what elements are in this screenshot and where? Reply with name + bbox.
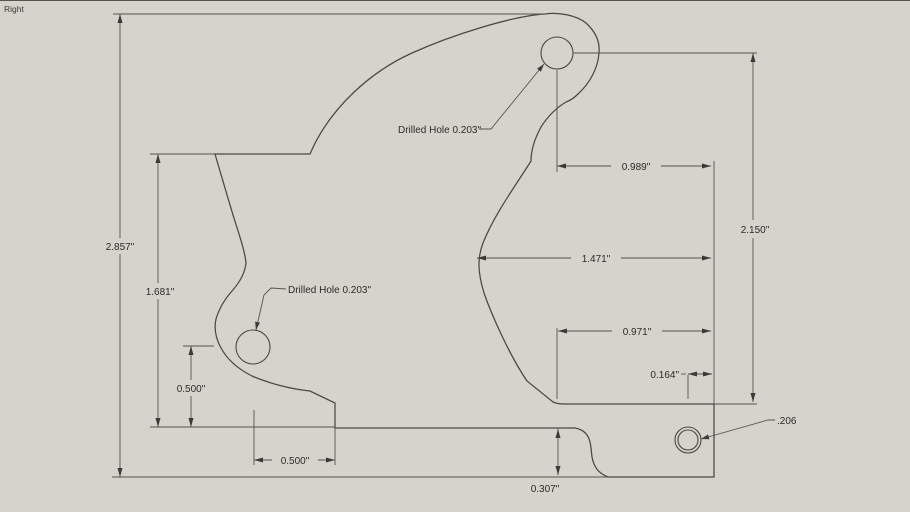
dim-hole-to-right-edge-label[interactable]: 0.989" (622, 162, 651, 173)
dimension-right-side-height[interactable]: 2.150" (573, 53, 770, 404)
dim-hole-center-offset-label[interactable]: 0.500" (281, 456, 310, 467)
dim-left-profile-height-label[interactable]: 1.681" (146, 287, 175, 298)
dimension-hole-center-offset[interactable]: 0.500" (254, 410, 335, 467)
leader-small-hole[interactable]: .206 (700, 416, 797, 441)
dimension-step-height[interactable]: 0.307" (531, 429, 561, 495)
leader-lower-drilled-hole-label[interactable]: Drilled Hole 0.203" (288, 285, 371, 296)
dim-hole-center-height-label[interactable]: 0.500" (177, 384, 206, 395)
leader-small-hole-label[interactable]: .206 (777, 416, 797, 427)
leader-lower-drilled-hole[interactable]: Drilled Hole 0.203" (254, 285, 372, 330)
dim-arc-to-right-edge-label[interactable]: 1.471" (582, 254, 611, 265)
dim-small-hole-to-edge-label[interactable]: 0.164" (650, 370, 679, 381)
dimension-overall-height[interactable]: 2.857" (106, 14, 608, 477)
part-outline[interactable] (215, 13, 714, 477)
leader-top-drilled-hole-label[interactable]: Drilled Hole 0.203" (398, 125, 481, 136)
dim-right-side-height-label[interactable]: 2.150" (741, 225, 770, 236)
dim-overall-height-label[interactable]: 2.857" (106, 242, 135, 253)
top-drilled-hole[interactable] (541, 37, 573, 69)
leader-top-drilled-hole[interactable]: Drilled Hole 0.203" (398, 62, 546, 136)
dim-step-height-label[interactable]: 0.307" (531, 484, 560, 495)
small-hole-inner[interactable] (678, 430, 698, 450)
small-hole-outer[interactable] (675, 427, 701, 453)
scene-label: Right (4, 4, 24, 14)
cad-viewport[interactable]: Right 2.857" 1.681" 0.500" (0, 0, 910, 512)
dimension-hole-to-right-edge[interactable]: 0.989" (557, 70, 714, 404)
dimension-hole-center-height[interactable]: 0.500" (177, 346, 214, 427)
part-edge-path[interactable] (215, 13, 714, 477)
dim-notch-to-right-edge-label[interactable]: 0.971" (623, 327, 652, 338)
lower-drilled-hole[interactable] (236, 330, 270, 364)
dimension-arc-to-right-edge[interactable]: 1.471" (477, 254, 711, 265)
dimension-small-hole-to-edge[interactable]: 0.164" (650, 370, 712, 399)
